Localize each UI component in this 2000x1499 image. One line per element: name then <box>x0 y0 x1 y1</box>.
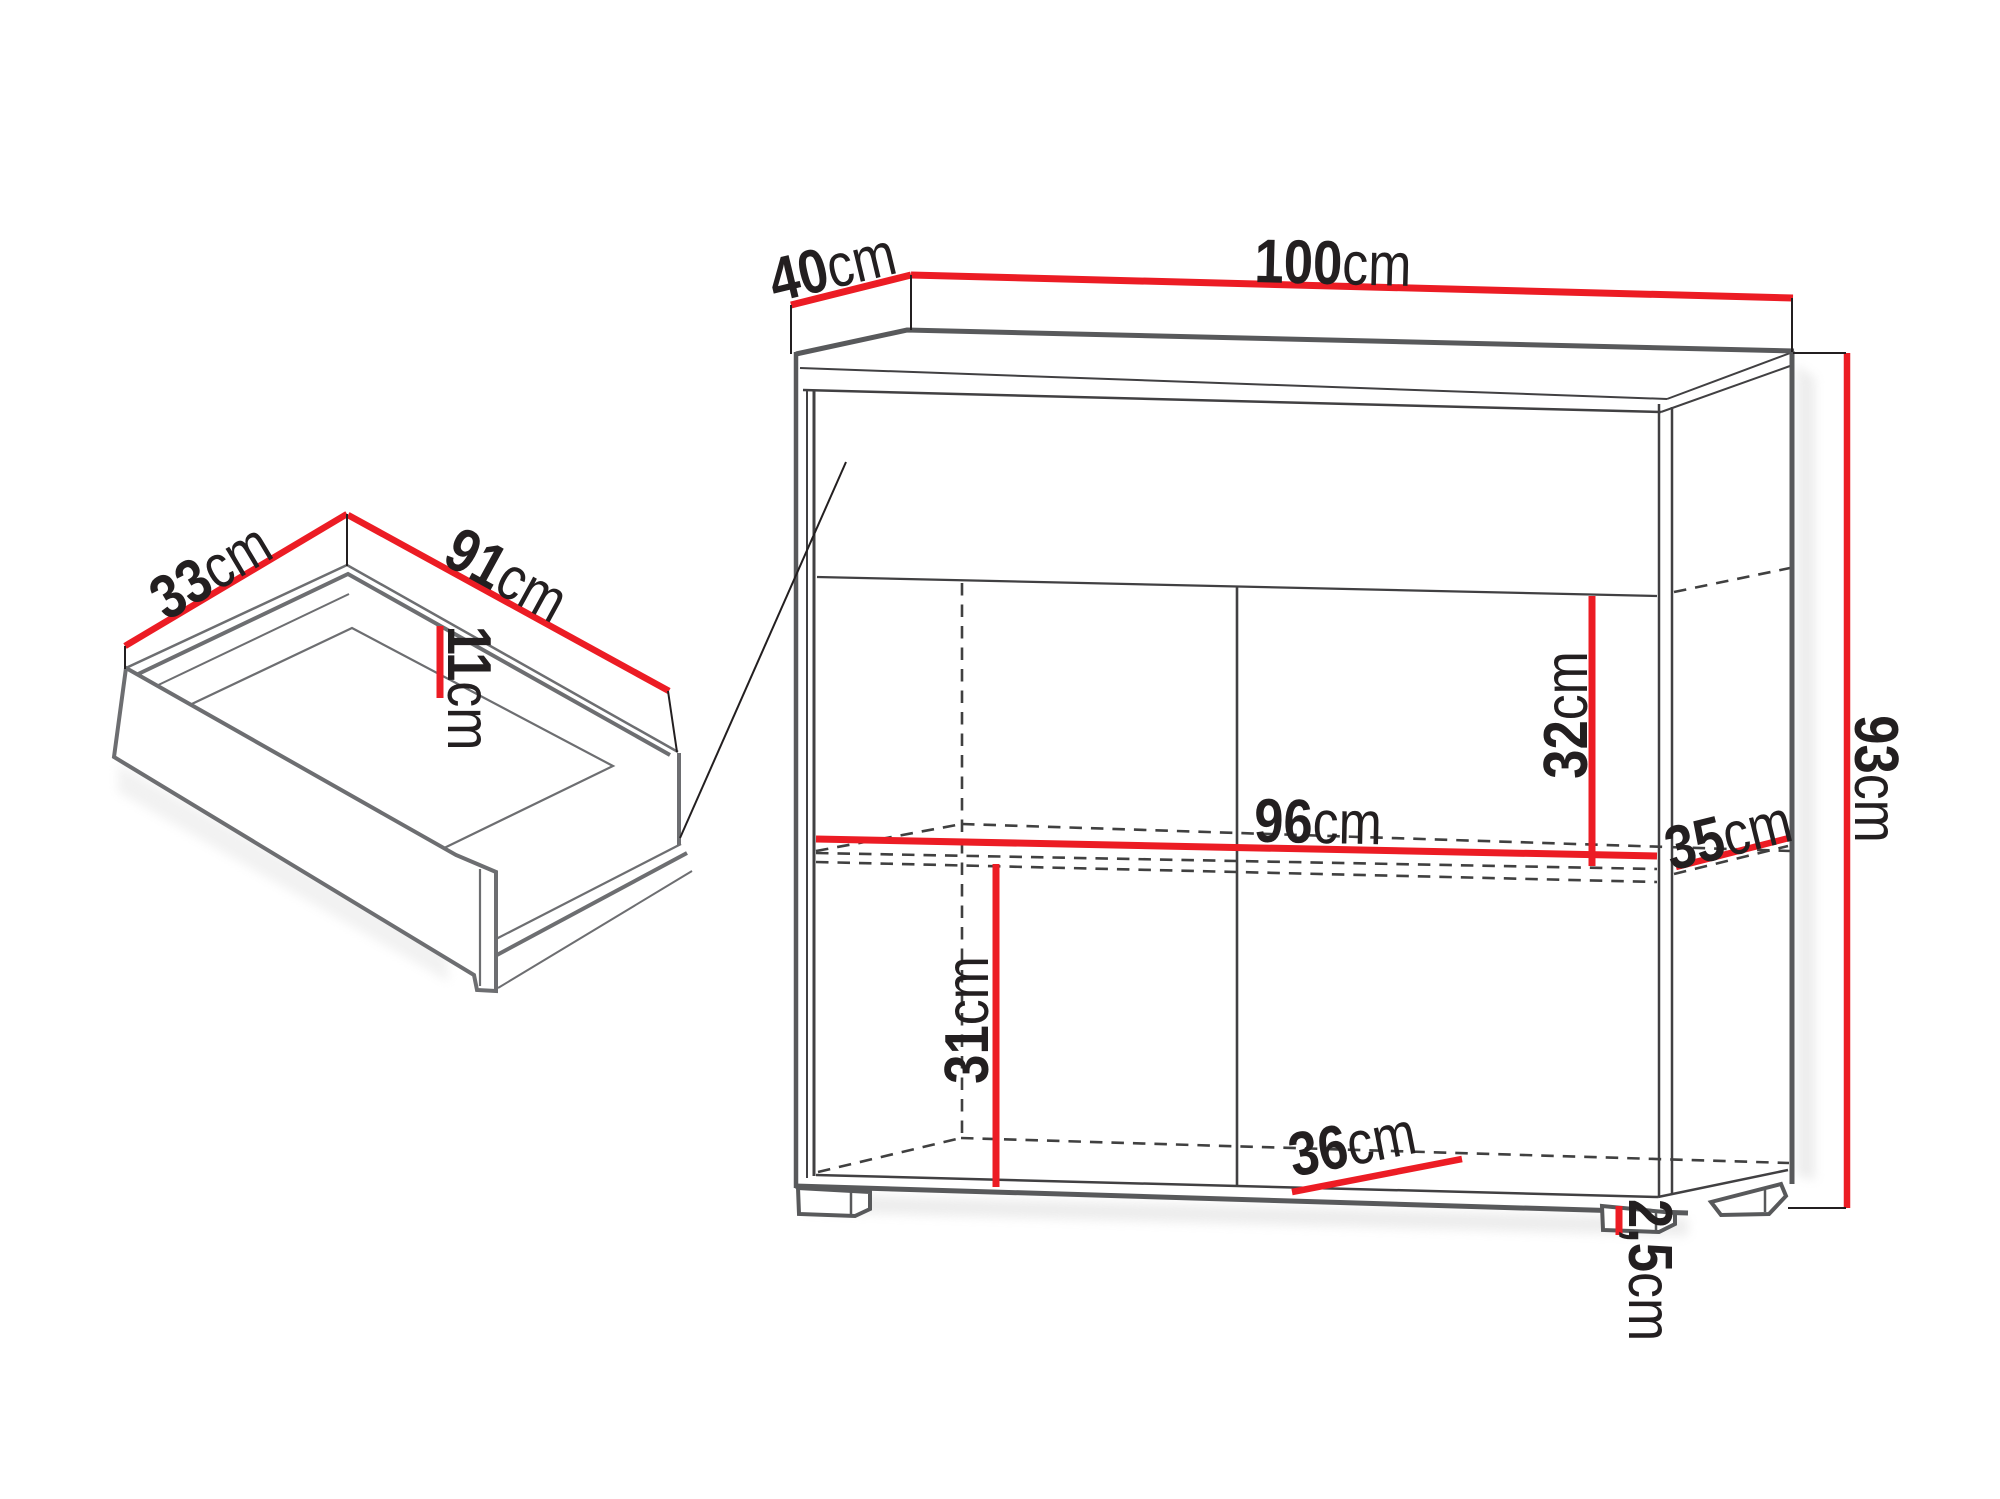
svg-text:32cm: 32cm <box>1532 651 1601 779</box>
svg-text:35cm: 35cm <box>1658 787 1799 885</box>
svg-text:91cm: 91cm <box>434 514 579 636</box>
svg-text:100cm: 100cm <box>1254 227 1413 300</box>
svg-text:40cm: 40cm <box>762 219 902 316</box>
svg-text:11cm: 11cm <box>434 626 503 751</box>
svg-text:93cm: 93cm <box>1841 715 1910 843</box>
svg-text:96cm: 96cm <box>1253 787 1382 859</box>
svg-text:2,5cm: 2,5cm <box>1615 1199 1684 1341</box>
svg-text:36cm: 36cm <box>1283 1098 1422 1190</box>
svg-text:31cm: 31cm <box>933 956 1002 1084</box>
